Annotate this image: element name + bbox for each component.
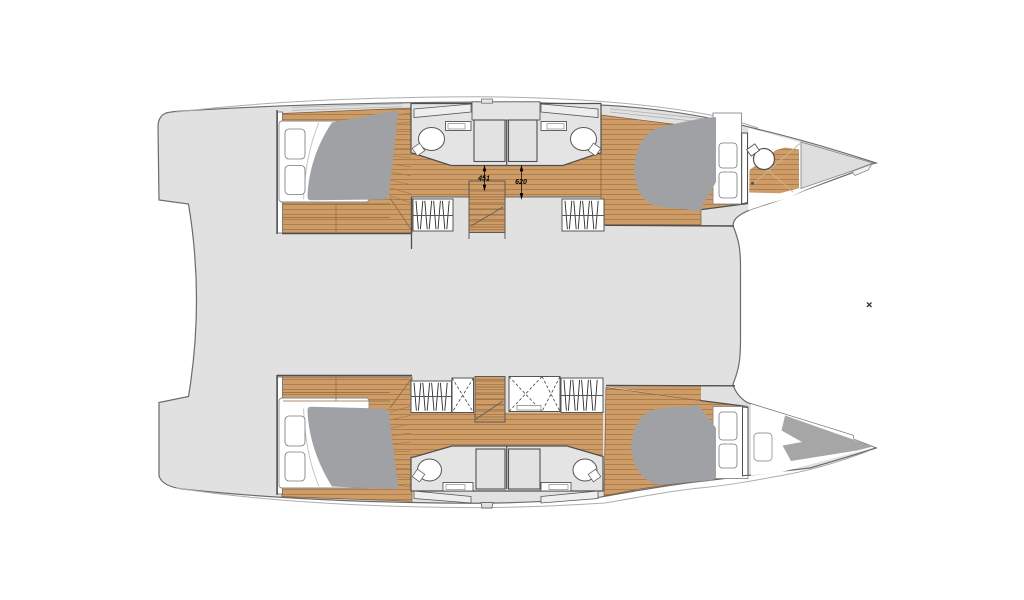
svg-text:620: 620 <box>515 179 527 186</box>
svg-text:451: 451 <box>477 176 490 183</box>
